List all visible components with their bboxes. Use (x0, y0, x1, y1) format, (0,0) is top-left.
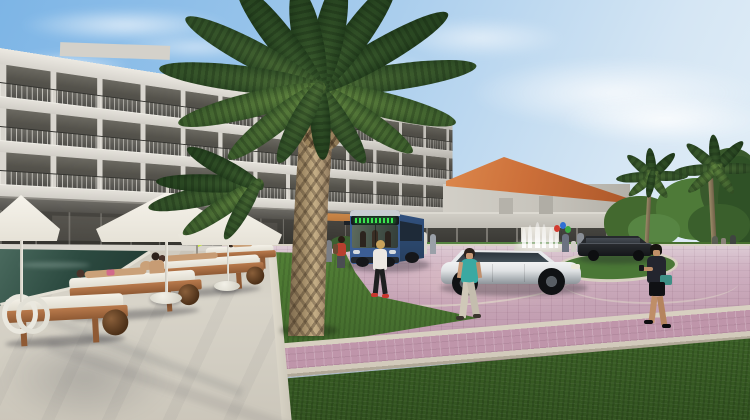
parasol-base (214, 281, 240, 291)
bus-passenger-silhouette (360, 231, 366, 247)
pedestrian (562, 234, 569, 252)
sedan-headlight (571, 264, 580, 269)
wagon-wheel (633, 250, 644, 261)
parasol-base (150, 292, 182, 304)
fountain-mist (516, 240, 564, 250)
pedestrian (326, 240, 332, 262)
parasol-pole (165, 242, 168, 298)
bus-windshield (352, 225, 398, 248)
bus-sign-strip (351, 216, 399, 225)
pavilion-parapet-tab (499, 198, 513, 214)
bus-rear-wheel (405, 252, 419, 263)
bus-front-wheel (356, 257, 369, 267)
bus-passenger-silhouette (385, 231, 391, 247)
scene-stage (0, 0, 750, 420)
parasol-pole (20, 240, 23, 302)
sedan-wheel (538, 268, 565, 295)
bus-headlight (353, 250, 360, 254)
bikini (106, 269, 114, 276)
sitting-man-torso (149, 260, 165, 274)
bus-destination-display (355, 218, 395, 223)
bus-mirror (344, 221, 350, 225)
pedestrian-child (571, 241, 576, 252)
balloon-green (565, 226, 571, 233)
pedestrian (430, 234, 436, 254)
pavilion-parapet-tab (539, 196, 553, 214)
sedan-door-seam (492, 264, 493, 282)
bus-headlight (389, 250, 396, 254)
background-tree (688, 204, 750, 246)
wagon-wheel (588, 250, 599, 261)
sedan-door-seam (524, 264, 525, 282)
